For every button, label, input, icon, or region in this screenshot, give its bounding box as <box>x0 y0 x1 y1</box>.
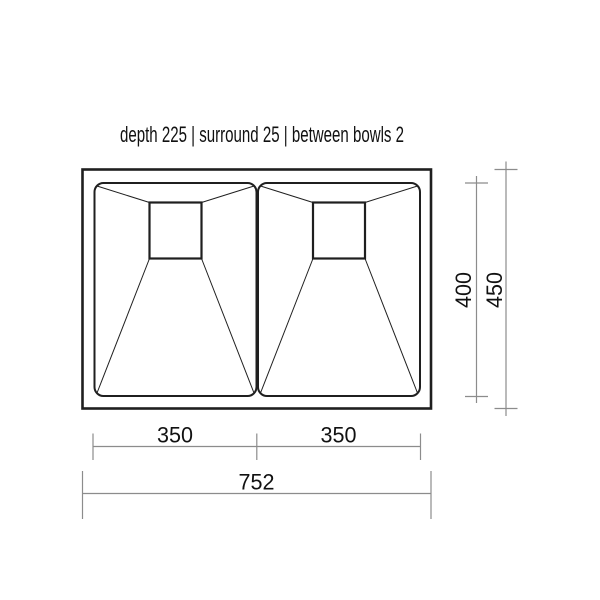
right-bowl-drain <box>313 203 365 259</box>
sink-technical-drawing: depth 225 | surround 25 | between bowls … <box>0 0 600 600</box>
drawing-title: depth 225 | surround 25 | between bowls … <box>120 122 404 147</box>
dim-label-752: 752 <box>239 470 275 495</box>
left-bowl-drain <box>150 203 202 259</box>
left-bowl-slope-lines <box>97 186 254 393</box>
dim-label-left-350: 350 <box>157 423 193 448</box>
dim-label-400: 400 <box>451 272 476 308</box>
sink-dimension-diagram: depth 225 | surround 25 | between bowls … <box>0 0 600 600</box>
dim-bowl-widths-lines <box>93 434 421 461</box>
left-bowl-outline <box>95 183 257 396</box>
dim-label-450: 450 <box>482 272 507 308</box>
dim-label-right-350: 350 <box>321 423 357 448</box>
dim-bowl-widths-350: 350 350 <box>93 423 421 461</box>
sink-plan-view <box>83 170 432 409</box>
right-bowl-slope-lines <box>261 186 418 393</box>
dim-overall-width-752: 752 <box>83 470 432 520</box>
dim-overall-depth-450: 450 <box>482 162 518 417</box>
right-bowl-outline <box>258 183 420 396</box>
